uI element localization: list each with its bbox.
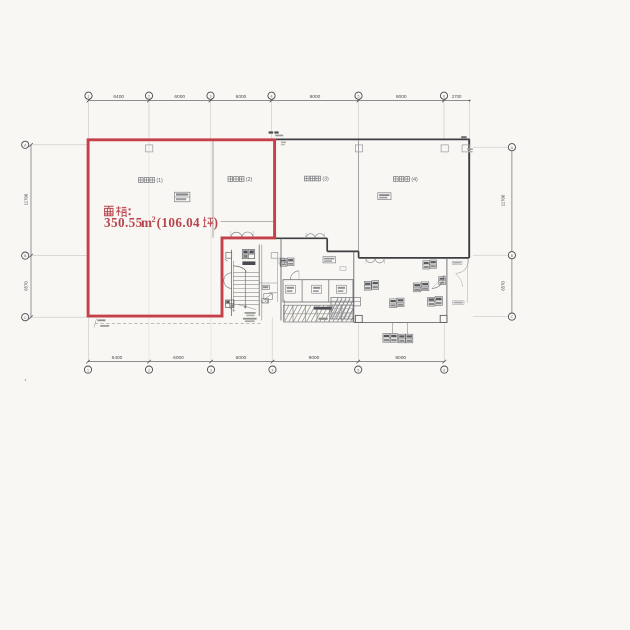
svg-text:4: 4 <box>272 368 274 372</box>
svg-text:2700: 2700 <box>452 94 462 99</box>
svg-text:11700: 11700 <box>501 194 506 206</box>
svg-text:4: 4 <box>271 94 273 98</box>
svg-text:(2): (2) <box>246 177 253 183</box>
svg-text:6570: 6570 <box>501 281 506 291</box>
svg-text:2: 2 <box>152 215 156 224</box>
svg-text:6570: 6570 <box>24 281 29 291</box>
svg-text:5: 5 <box>357 368 359 372</box>
svg-text:350.55: 350.55 <box>104 215 143 230</box>
svg-text:2: 2 <box>148 94 150 98</box>
svg-text:5: 5 <box>358 94 360 98</box>
svg-text:(1): (1) <box>156 178 163 184</box>
svg-text:(4): (4) <box>411 177 418 183</box>
svg-text:9000: 9000 <box>310 94 321 100</box>
svg-text:): ) <box>214 215 218 230</box>
svg-text:9000: 9000 <box>395 355 406 361</box>
svg-text:1: 1 <box>87 368 89 372</box>
svg-text:6: 6 <box>443 94 445 98</box>
svg-text:9000: 9000 <box>396 94 407 100</box>
svg-text:3: 3 <box>210 94 212 98</box>
svg-text:6400: 6400 <box>113 94 124 100</box>
svg-text:(3): (3) <box>322 177 329 183</box>
svg-text:11700: 11700 <box>24 193 29 205</box>
svg-text:3: 3 <box>210 368 212 372</box>
svg-text:(106.04: (106.04 <box>157 215 200 230</box>
svg-text:6000: 6000 <box>173 355 184 361</box>
svg-text:2: 2 <box>148 368 150 372</box>
svg-text:1: 1 <box>88 94 90 98</box>
svg-text:m: m <box>141 215 152 230</box>
svg-text:6000: 6000 <box>174 94 185 100</box>
svg-text:6: 6 <box>443 368 445 372</box>
svg-text:6000: 6000 <box>236 355 247 361</box>
svg-text:9000: 9000 <box>309 355 320 361</box>
svg-text:L+3: L+3 <box>262 299 268 303</box>
svg-text:6400: 6400 <box>112 355 123 361</box>
svg-text:6000: 6000 <box>236 94 247 100</box>
